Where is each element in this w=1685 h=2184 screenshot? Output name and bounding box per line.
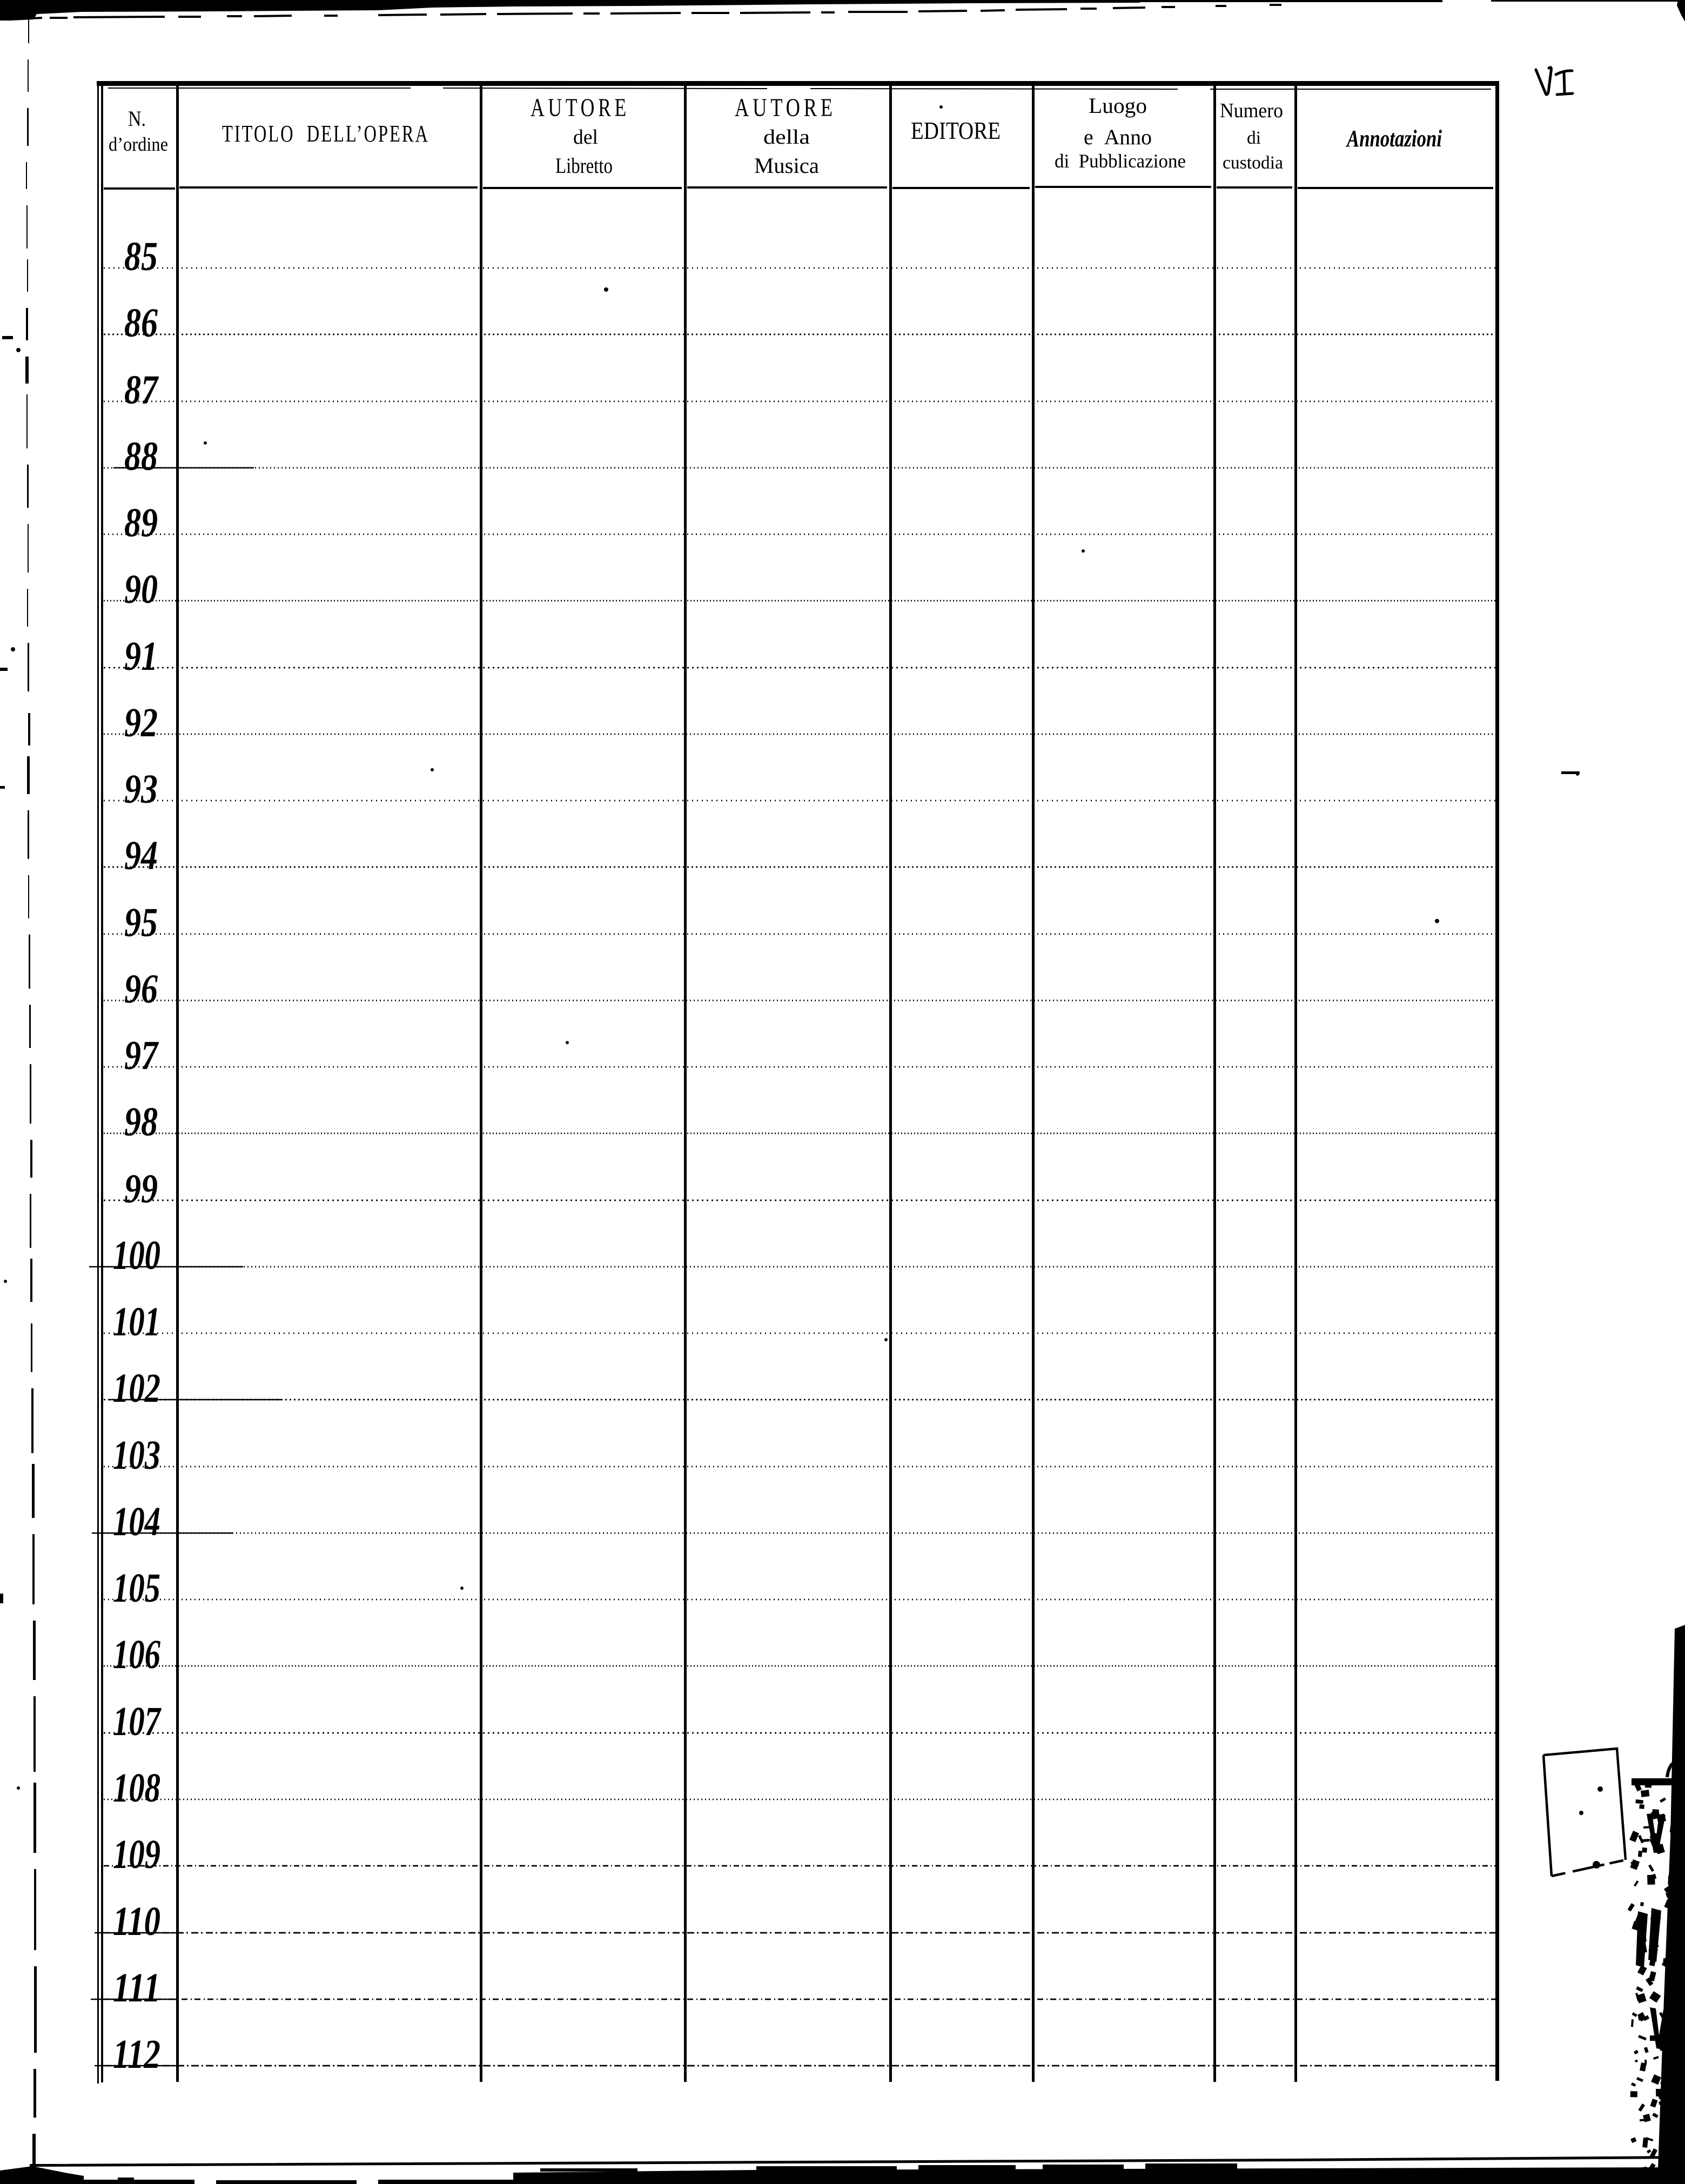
svg-text:N.: N.: [128, 106, 146, 131]
svg-text:e Anno: e Anno: [1084, 125, 1152, 149]
svg-text:96: 96: [124, 966, 158, 1012]
svg-text:102: 102: [113, 1366, 160, 1411]
svg-text:TITOLO DELL’OPERA: TITOLO DELL’OPERA: [222, 120, 429, 147]
svg-text:98: 98: [124, 1099, 158, 1145]
svg-text:92: 92: [124, 700, 158, 745]
svg-text:103: 103: [113, 1433, 160, 1478]
svg-text:Musica: Musica: [754, 153, 819, 178]
svg-text:90: 90: [124, 567, 158, 612]
svg-text:104: 104: [113, 1499, 160, 1544]
svg-text:87: 87: [124, 367, 159, 413]
svg-text:Luogo: Luogo: [1089, 93, 1147, 118]
svg-text:100: 100: [113, 1233, 160, 1278]
svg-text:108: 108: [113, 1765, 160, 1811]
svg-text:105: 105: [113, 1565, 160, 1611]
svg-text:85: 85: [124, 234, 158, 279]
svg-text:EDITORE: EDITORE: [911, 117, 1001, 144]
svg-text:112: 112: [113, 2032, 160, 2077]
svg-text:AUTORE: AUTORE: [735, 93, 836, 122]
svg-text:111: 111: [113, 1965, 160, 2011]
svg-text:di: di: [1247, 128, 1261, 148]
svg-text:89: 89: [124, 500, 158, 546]
svg-text:88: 88: [124, 434, 158, 479]
svg-text:Numero: Numero: [1220, 99, 1283, 122]
svg-text:101: 101: [113, 1299, 160, 1345]
svg-text:91: 91: [124, 634, 158, 679]
svg-text:d’ordine: d’ordine: [109, 133, 168, 155]
svg-text:106: 106: [113, 1632, 160, 1677]
svg-text:Annotazioni: Annotazioni: [1346, 125, 1442, 152]
svg-text:93: 93: [124, 767, 158, 812]
svg-text:99: 99: [124, 1166, 158, 1212]
svg-text:95: 95: [124, 900, 158, 945]
svg-text:94: 94: [124, 833, 158, 878]
svg-text:109: 109: [113, 1832, 160, 1877]
svg-text:della: della: [763, 126, 810, 149]
svg-text:del: del: [573, 126, 598, 149]
svg-text:97: 97: [124, 1033, 159, 1078]
svg-text:110: 110: [113, 1899, 160, 1944]
svg-text:AUTORE: AUTORE: [531, 93, 630, 122]
svg-text:custodia: custodia: [1223, 153, 1283, 173]
svg-text:107: 107: [113, 1699, 162, 1744]
svg-text:di Pubblicazione: di Pubblicazione: [1055, 150, 1186, 172]
svg-text:Libretto: Libretto: [555, 153, 613, 178]
svg-text:86: 86: [124, 300, 158, 346]
